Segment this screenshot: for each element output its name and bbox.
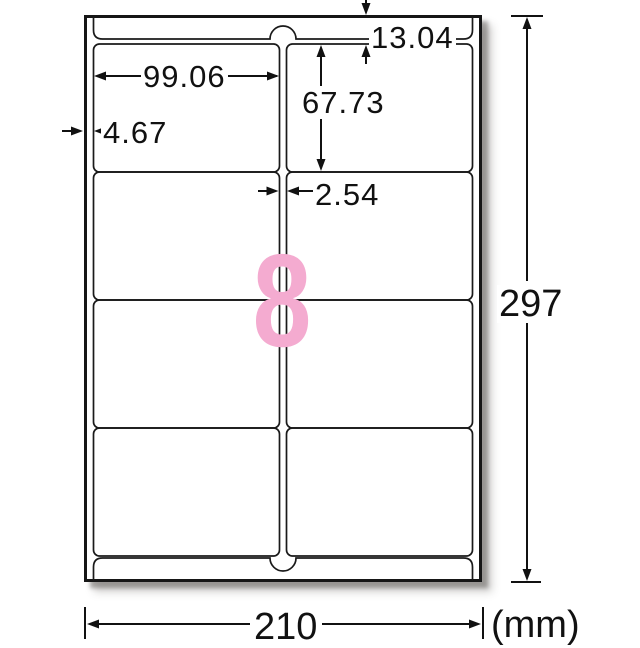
arrowhead-down	[362, 3, 371, 15]
dim-text-top-margin: 13.04	[369, 22, 456, 53]
label-cell-r4c1	[94, 428, 280, 556]
arrowhead-left	[94, 72, 106, 81]
dim-text-sheet-width: 210	[252, 608, 319, 646]
arrowhead-left	[287, 187, 299, 196]
dim-text-sheet-height: 297	[497, 285, 564, 323]
dim-text-column-gap: 2.54	[313, 179, 381, 210]
dim-text-label-width: 99.06	[141, 61, 228, 92]
arrowhead-up	[317, 45, 326, 57]
label-cell-r3c1	[94, 300, 280, 428]
bottom-margin-cut-line	[94, 558, 473, 581]
arrowhead-right	[71, 127, 83, 136]
arrowhead-right	[469, 620, 481, 629]
label-cell-r2c1	[94, 172, 280, 300]
arrowhead-down	[317, 159, 326, 171]
label-cell-r3c2	[287, 300, 473, 428]
arrowhead-down	[523, 569, 532, 581]
label-count-numeral: 8	[253, 235, 312, 367]
label-cell-r4c2	[287, 428, 473, 556]
arrowhead-up	[523, 17, 532, 29]
arrowhead-right	[267, 72, 279, 81]
arrowhead-right	[267, 187, 279, 196]
arrowhead-left	[87, 620, 99, 629]
unit-label: (mm)	[489, 606, 582, 644]
dim-text-side-margin: 4.67	[101, 117, 169, 148]
page-background: { "diagram": { "type": "label-sheet-dime…	[0, 0, 640, 640]
dim-text-label-height: 67.73	[300, 87, 387, 118]
